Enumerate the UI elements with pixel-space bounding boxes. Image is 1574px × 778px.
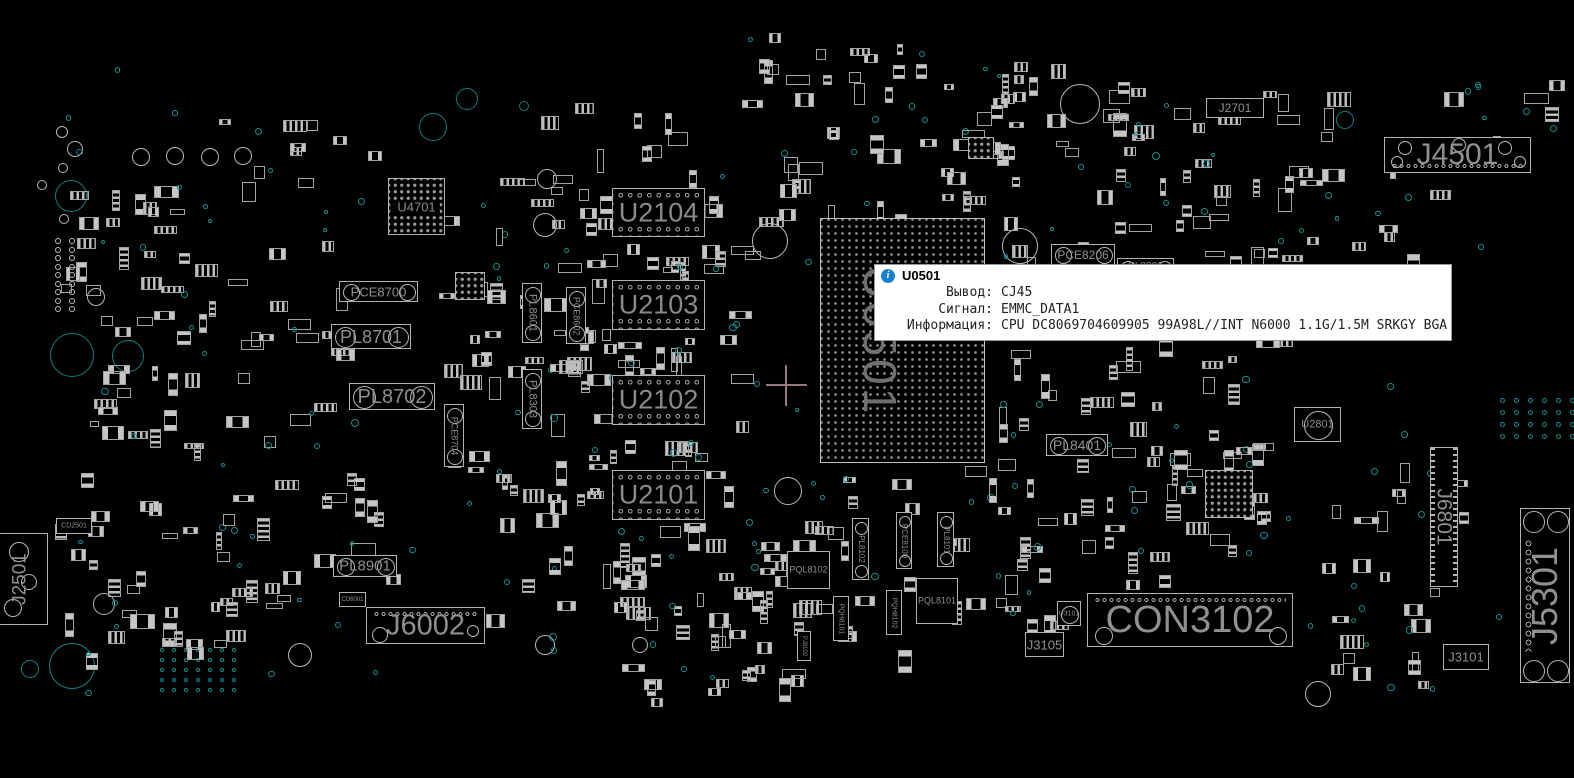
smd-component [1285,176,1294,193]
via-dot [86,652,91,657]
smd-component [61,284,72,294]
via-dot [1430,686,1435,691]
via-dot [221,463,225,467]
component-j2701[interactable]: J2701 [1206,98,1264,118]
smd-component [195,264,219,277]
via-dot [746,519,753,526]
smd-component [715,251,725,267]
smd-component [117,388,130,399]
pad-dot [1570,398,1574,403]
smd-component [70,191,89,199]
pad-dot [160,668,164,672]
pad-hole-circle [1523,660,1545,682]
smd-component [620,543,630,568]
component-label: CD6001 [341,597,363,603]
component-pce8704[interactable]: PCE8704 [444,404,464,467]
smd-component [226,630,247,642]
mount-hole-circle [132,148,150,166]
smd-component [580,208,597,219]
smd-component [469,451,489,462]
smd-component [496,228,504,246]
smd-component [716,679,729,688]
component-pl8401[interactable]: PL8401 [1046,434,1108,456]
via-dot [675,347,681,353]
smd-component [1174,108,1191,120]
smd-component [283,571,302,585]
pad-dot [160,648,164,652]
smd-component [1115,222,1126,235]
via-dot [756,549,761,554]
smd-component [481,352,492,366]
component-u2102[interactable]: U2102 [612,375,705,425]
smd-component [489,377,501,400]
pad-dot [208,668,212,672]
component-pl8701[interactable]: PL8701 [331,324,411,349]
smd-component [439,293,454,299]
smd-component [999,424,1008,443]
smd-component [265,583,281,594]
smd-component [90,421,99,427]
smd-component [1332,505,1341,520]
smd-component [165,607,178,619]
pad-dot [1528,398,1533,403]
pad-dot [220,688,224,692]
via-dot [101,388,108,395]
component-pce8700[interactable]: PCE8700 [339,281,418,302]
smd-component [486,614,504,628]
smd-component [468,467,484,473]
smd-component [1160,178,1166,196]
pad-dot [69,306,75,312]
component-pql8102[interactable]: PQL8102 [787,551,830,589]
component-label: PQL8101 [918,597,956,606]
via-dot [1036,401,1043,408]
smd-component [1077,459,1089,473]
smd-component [769,33,782,43]
component-cd6001[interactable]: CD6001 [339,592,366,607]
via-dot [922,117,928,123]
smd-component [829,130,839,140]
component-label: PJ8102 [801,636,807,656]
pad-dot [1514,434,1519,439]
component-unlabeled-chip [455,272,485,300]
smd-component [98,407,118,415]
component-pce8100[interactable]: PCE8100 [896,512,912,569]
smd-component [780,184,797,199]
smd-component [209,301,216,317]
smd-component [815,526,834,536]
pad-dot [172,648,176,652]
component-pqh8101[interactable]: PQH8101 [833,596,849,641]
smd-component [904,577,916,591]
smd-component [697,593,705,608]
component-pl8303[interactable]: PL8303 [522,369,542,429]
smd-component [211,602,220,611]
component-cd2501[interactable]: CD2501 [56,518,92,534]
smd-component [102,426,124,440]
via-dot [592,447,598,453]
pad-dot [69,247,75,253]
component-label: U3101 [1059,610,1080,617]
via-dot [763,488,768,493]
smd-component [108,579,121,597]
smd-component [77,238,97,249]
smd-component [1014,75,1024,84]
component-unlabeled-chip [1205,470,1253,518]
smd-component [150,429,161,448]
component-pce8206[interactable]: PCE8206 [1051,244,1115,265]
via-dot [1246,550,1252,556]
smd-component [185,373,200,387]
smd-component [998,459,1015,471]
via-dot [843,476,849,482]
component-pl8901[interactable]: PL8901 [333,555,397,577]
pad-dot [220,678,224,682]
smd-component [1411,619,1431,633]
via-dot [1387,684,1394,691]
via-dot [983,67,987,71]
pad-dot [1542,410,1547,415]
smd-component [724,486,734,508]
pad-dot [55,306,61,312]
smd-component [1322,563,1335,574]
pad-dot [1542,398,1547,403]
pad-dot [196,668,200,672]
via-dot [1138,548,1144,554]
smd-component [564,546,573,566]
component-u2104[interactable]: U2104 [612,188,705,237]
smd-component [119,247,130,270]
smd-component [1065,148,1079,157]
via-dot [1211,153,1215,157]
via-dot [751,564,759,572]
smd-component [130,614,155,629]
smd-component [368,151,383,161]
via-dot [66,115,71,120]
smd-component [587,374,610,385]
component-j5301[interactable]: J5301 [1520,508,1570,683]
via-dot [1418,511,1425,518]
component-label: PCE8206 [1057,249,1108,261]
smd-component [333,136,347,146]
pad-hole-circle [1398,141,1412,155]
smd-component [1209,430,1219,441]
via-dot [720,174,725,179]
via-dot [1186,481,1193,488]
pad-dot [208,648,212,652]
component-j6801[interactable]: J6801 [1430,447,1458,587]
via-dot [1299,228,1304,233]
smd-component [622,664,644,672]
component-info-tooltip: i U0501 Вывод: CJ45 Сигнал: EMMC_DATA1 И… [874,264,1452,341]
smd-component [688,526,700,551]
smd-component [579,189,588,201]
smd-component [1105,525,1126,532]
smd-component [307,120,317,132]
smd-component [232,588,253,597]
component-label: J2501 [11,553,30,605]
smd-component [651,698,663,707]
pad-dot [55,238,61,244]
pad-dot [220,668,224,672]
smd-component [736,421,749,433]
smd-component [1081,499,1095,516]
component-j2501[interactable]: J2501 [0,533,48,625]
smd-component [136,571,146,587]
smd-component [91,511,111,522]
via-dot [314,443,320,449]
smd-component [589,455,600,461]
component-label: PL8601 [527,294,538,332]
smd-component [864,54,878,62]
component-j3105[interactable]: J3105 [1025,632,1064,657]
smd-component [577,494,585,506]
via-dot [497,276,502,281]
smd-component [1202,361,1224,368]
smd-component [1150,552,1170,561]
tooltip-row-signal: Сигнал: EMMC_DATA1 [881,302,1443,319]
via-dot [1034,543,1041,550]
smd-component [66,267,80,280]
smd-component [226,602,239,617]
component-pl8102[interactable]: PL8102 [852,518,869,580]
pad-dot [208,658,212,662]
via-dot [351,419,359,427]
smd-component [761,542,780,551]
via-dot [203,204,208,209]
via-dot [1164,103,1169,108]
smd-component [154,226,177,235]
smd-component [177,331,191,345]
smd-component [766,591,773,608]
via-dot [618,528,625,535]
component-j6002[interactable]: J6002 [366,607,485,644]
smd-component [112,190,121,210]
smd-component [627,244,640,255]
smd-component [920,139,937,147]
smd-component [1183,170,1191,183]
component-u0501[interactable]: U0501 [820,218,985,463]
smd-component [242,182,257,203]
component-label: PL8102 [857,535,865,563]
via-dot [969,499,974,504]
smd-component [164,410,177,430]
smd-component [1324,108,1333,130]
smd-component [596,279,608,288]
smd-component [685,338,695,345]
smd-component [1128,552,1138,574]
smd-component [1187,469,1203,477]
pad-hole-circle [855,522,868,535]
smd-component [322,241,334,252]
component-pce8602[interactable]: PCE8602 [566,287,586,344]
smd-component [1005,575,1019,596]
via-dot [805,259,812,266]
via-dot [1482,116,1487,121]
smd-component [1118,82,1130,94]
smd-component [1121,392,1135,406]
pad-dot [1528,410,1533,415]
smd-component [729,311,752,319]
component-pj8102[interactable]: PJ8102 [797,631,811,661]
smd-component [219,119,231,126]
component-u2101[interactable]: U2101 [612,470,705,520]
component-u4701[interactable]: U4701 [388,178,445,235]
component-label: PL8401 [1053,438,1101,452]
smd-component [79,217,99,230]
smd-component [799,600,822,615]
via-dot [551,647,557,653]
via-dot [1359,605,1366,612]
smd-component [1029,77,1038,96]
component-u2103[interactable]: U2103 [612,280,705,330]
component-label: PCE8704 [450,416,459,455]
via-dot [1278,238,1284,244]
via-dot [754,381,760,387]
pad-hole-circle [855,565,868,578]
via-dot [515,410,521,416]
smd-component [1377,511,1388,532]
smd-component [101,316,113,326]
component-pl8702[interactable]: PL8702 [349,383,435,410]
smd-component [1282,255,1304,262]
smd-component [1112,448,1136,458]
smd-component [742,670,751,680]
component-pqh8102[interactable]: PQH8102 [886,590,902,635]
smd-component [1203,377,1215,394]
via-dot [733,321,740,328]
smd-component [715,636,726,648]
pad-dot [1500,398,1505,403]
via-dot [1308,623,1314,629]
via-dot [1387,383,1393,389]
via-dot [996,573,1002,579]
component-label: PL8901 [339,559,391,574]
smd-component [148,207,159,217]
smd-component [708,688,721,696]
via-dot [78,540,82,544]
smd-component [1166,504,1180,522]
pad-dot [1556,410,1561,415]
via-dot [795,408,799,412]
smd-component [1047,114,1067,128]
via-dot [1401,431,1408,438]
smd-component [1186,522,1208,535]
pad-dot [172,688,176,692]
via-dot [820,495,824,499]
mount-hole-circle [201,148,219,166]
component-u2801[interactable]: U2801 [1294,407,1341,442]
via-dot [752,541,757,546]
smd-component [642,146,652,162]
smd-component [1167,484,1177,501]
smd-component [103,371,125,385]
via-dot [335,622,341,628]
component-label: J3105 [1027,638,1062,651]
via-dot [564,248,569,253]
smd-component [1444,92,1464,106]
component-u3101[interactable]: U3101 [1057,601,1081,626]
via-dot [1364,642,1369,647]
smd-component [1159,575,1171,588]
smd-component [367,500,379,522]
component-con3102[interactable]: CON3102 [1087,593,1293,647]
via-dot [1351,583,1357,589]
component-j3101[interactable]: J3101 [1443,644,1489,670]
smd-component [1041,374,1049,398]
component-j4501[interactable]: J4501 [1384,137,1531,173]
smd-component [597,149,603,173]
mount-hole-circle [59,214,69,224]
smd-component [254,166,265,179]
smd-component [554,330,566,336]
pad-dot [208,678,212,682]
smd-component [1116,169,1127,183]
via-dot [250,534,254,538]
pad-dot [172,668,176,672]
via-dot [670,449,678,457]
component-pl8601[interactable]: PL8601 [522,283,542,343]
component-pql8101[interactable]: PQL8101 [916,578,958,624]
smd-component [1151,446,1163,456]
via-dot [1078,164,1084,170]
smd-component [755,665,765,674]
via-dot [323,228,327,232]
smd-component [1014,62,1028,73]
smd-component [850,48,870,56]
smd-component [689,170,698,188]
pad-dot [232,678,236,682]
pad-hole-circle [1498,141,1512,155]
smd-component [709,613,729,628]
smd-component [106,218,120,228]
via-dot [1550,125,1557,132]
via-dot [1012,483,1018,489]
pad-dot [1570,422,1574,427]
smd-component [86,285,101,296]
mount-hole-circle [288,643,312,667]
smd-component [154,311,175,320]
smd-component [1253,179,1260,197]
via-dot [493,263,500,270]
smd-component [1129,224,1152,232]
component-unlabeled-chip [968,137,994,159]
smd-component [1352,242,1365,250]
smd-component [115,327,131,337]
component-label: J2701 [1219,102,1252,114]
component-label: PCE8700 [351,285,407,298]
via-dot [997,74,1001,78]
pad-dot [160,658,164,662]
smd-component [656,347,664,369]
smd-component [154,186,179,197]
smd-component [604,344,617,354]
via-dot [481,203,486,208]
via-dot [101,240,105,244]
smd-component [737,592,753,600]
component-label: CON3102 [1106,601,1275,639]
smd-component [336,349,355,361]
smd-component [162,533,178,539]
via-dot [1246,461,1253,468]
pad-dot [55,247,61,253]
via-dot [324,210,328,214]
pad-hole-circle [1391,156,1403,168]
smd-component [1354,517,1379,524]
component-pl8101[interactable]: PL8101 [937,512,954,567]
mount-hole-circle [166,147,184,165]
boardview-canvas[interactable]: i U0501 Вывод: CJ45 Сигнал: EMMC_DATA1 И… [0,0,1574,778]
